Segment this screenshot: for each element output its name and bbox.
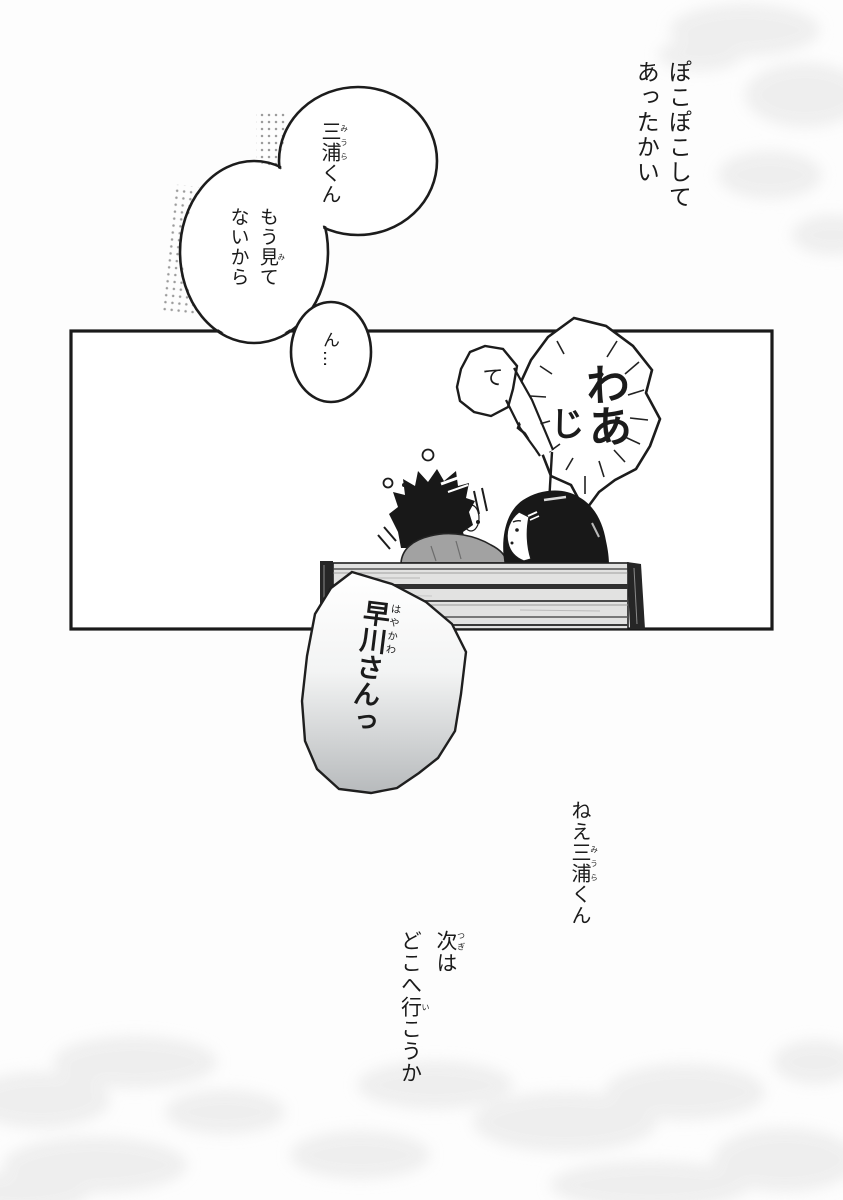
narration-line: どこへ行いこうか <box>394 930 430 1095</box>
narration-next-where: 次つぎは どこへ行いこうか <box>394 930 465 1095</box>
speech-miura-kun: 三浦みうらくん <box>316 121 348 241</box>
speech-not-looking: もう見みて ないから <box>223 207 286 307</box>
speech-line: ないから <box>223 207 252 307</box>
narration-line: 次つぎは <box>430 930 466 1095</box>
narration-warmth: ぽこぽこして あったかい <box>629 60 693 235</box>
narration-line: あったかい <box>629 60 661 235</box>
speech-ji: じ <box>540 406 589 440</box>
narration-nee-miura: ねえ三浦みうらくん <box>566 800 598 935</box>
cloud-bubble-group <box>180 87 437 343</box>
narration-line: ぽこぽこして <box>661 60 693 235</box>
speech-hmm: ん… <box>317 331 342 391</box>
girl-mouth <box>511 542 514 545</box>
speech-te: て <box>477 366 507 387</box>
manga-page: ぽこぽこして あったかい 三浦みうらくん もう見みて ないから ん… て わあ … <box>0 0 843 1200</box>
speech-line: もう見みて <box>252 207 285 307</box>
girl-eye <box>515 528 519 532</box>
